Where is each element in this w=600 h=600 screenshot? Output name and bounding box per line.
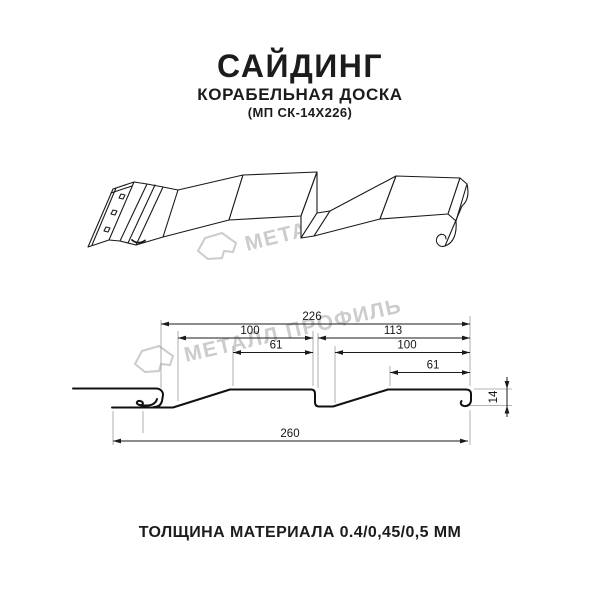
metall-profil-logo-icon	[198, 233, 236, 259]
watermark-lower: МЕТАЛЛ ПРОФИЛЬ	[135, 294, 404, 372]
cross-section-profile	[73, 389, 471, 408]
dimension-label: 113	[384, 325, 402, 337]
watermark-text: МЕТАЛЛ ПРОФИЛЬ	[182, 294, 404, 367]
dimension-100-right: 100	[335, 340, 470, 353]
dimension-label: 260	[280, 428, 299, 440]
dimension-label: 100	[240, 325, 259, 337]
dimension-label: 226	[302, 311, 321, 323]
metall-profil-logo-icon	[135, 346, 173, 372]
dimension-260: 260	[113, 428, 468, 441]
technical-drawing-canvas: МЕТАЛЛ ПРОФИЛЬ	[0, 0, 600, 600]
dimension-label: 100	[397, 340, 416, 352]
interlock-hook	[137, 399, 157, 406]
slope-face-1	[163, 175, 243, 237]
thickness-note: ТОЛЩИНА МАТЕРИАЛА 0.4/0,45/0,5 ММ	[0, 524, 600, 542]
dimension-61-right: 61	[390, 360, 470, 373]
dimension-14: 14	[488, 377, 507, 417]
dimension-label: 61	[427, 360, 440, 372]
dimension-label: 14	[488, 390, 500, 403]
dimension-label: 61	[270, 340, 283, 352]
dimension-226: 226	[161, 311, 470, 324]
product-diagram-page: САЙДИНГ КОРАБЕЛЬНАЯ ДОСКА (МП СК-14Х226)…	[0, 0, 600, 600]
